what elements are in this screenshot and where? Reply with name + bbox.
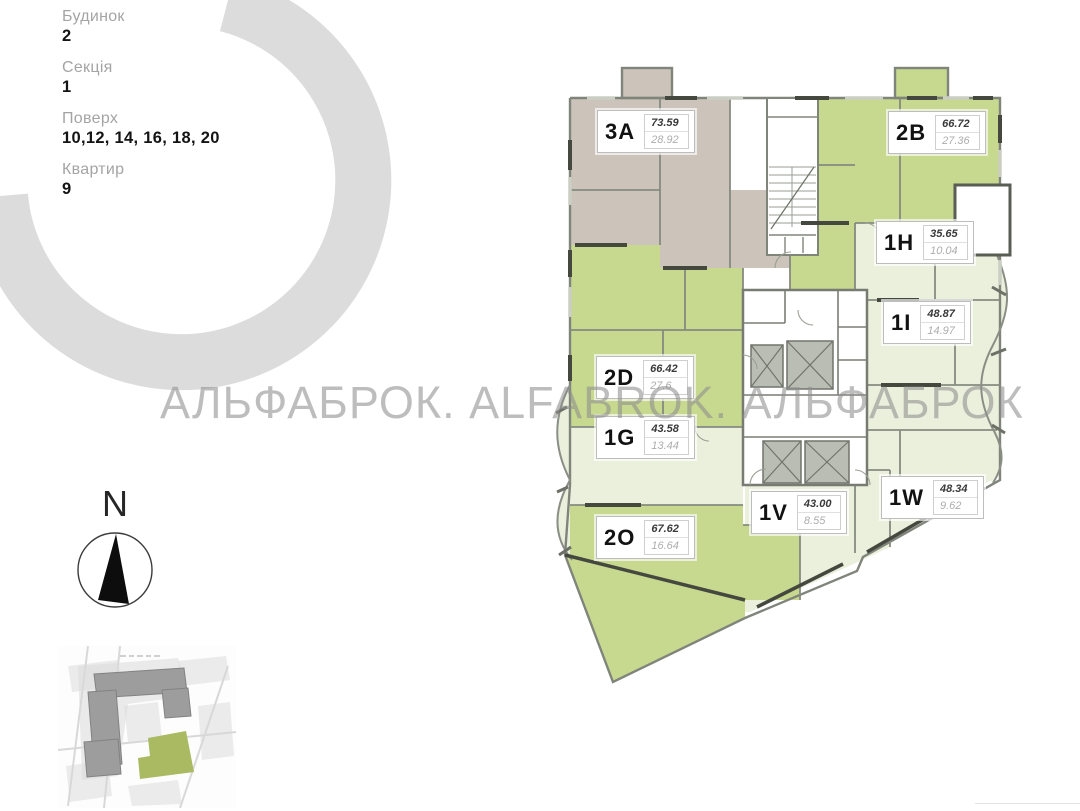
legend: Будинок 2 Секція 1 Поверх 10,12, 14, 16,… [62,8,220,212]
apartment-code: 2D [602,364,636,392]
area-total: 35.65 [924,226,967,243]
apartment-code: 1W [887,484,926,512]
apartment-areas: 67.6216.64 [644,520,689,555]
legend-item-section: Секція 1 [62,59,220,98]
apartment-code: 2B [894,119,928,147]
legend-item-apartments: Квартир 9 [62,161,220,200]
legend-value: 2 [62,26,220,47]
area-living: 16.64 [645,538,688,554]
apartment-badge-1h[interactable]: 1H35.6510.04 [876,221,974,264]
legend-value: 1 [62,77,220,98]
legend-value: 9 [62,179,220,200]
area-living: 8.55 [798,513,841,529]
apartment-badge-1v[interactable]: 1V43.008.55 [751,491,847,534]
apartment-code: 1V [757,499,790,527]
apartment-areas: 48.8714.97 [920,305,965,340]
apartment-badge-3a[interactable]: 3A73.5928.92 [597,110,695,153]
site-map [58,646,236,808]
area-total: 48.87 [921,306,964,323]
scan-artifact-line [975,803,1080,804]
area-total: 73.59 [645,115,688,132]
apartment-code: 1H [882,229,916,257]
apartment-areas: 66.7227.36 [935,115,980,150]
area-living: 9.62 [934,498,977,514]
area-living: 27.36 [936,133,979,149]
floor-plan-page: Будинок 2 Секція 1 Поверх 10,12, 14, 16,… [0,0,1080,811]
balcony-top-left [622,68,672,98]
legend-label: Квартир [62,161,220,179]
legend-item-building: Будинок 2 [62,8,220,47]
apartment-badge-1g[interactable]: 1G43.5813.44 [596,416,695,459]
apartment-badge-2b[interactable]: 2B66.7227.36 [888,111,986,154]
area-total: 67.62 [645,521,688,538]
apartment-areas: 43.008.55 [797,495,842,530]
stairwell [767,98,818,255]
north-label: N [50,486,180,522]
room-2d [570,245,743,427]
apartment-badge-1w[interactable]: 1W48.349.62 [881,476,984,519]
legend-label: Секція [62,59,220,77]
area-total: 66.72 [936,116,979,133]
legend-label: Поверх [62,110,220,128]
apartment-areas: 35.6510.04 [923,225,968,260]
area-living: 27.6 [644,378,687,394]
apartment-areas: 48.349.62 [933,480,978,515]
apartment-code: 2O [602,524,637,552]
area-living: 14.97 [921,323,964,339]
apartment-code: 3A [603,118,637,146]
area-living: 10.04 [924,243,967,259]
legend-item-floors: Поверх 10,12, 14, 16, 18, 20 [62,110,220,149]
area-total: 43.58 [645,421,688,438]
legend-label: Будинок [62,8,220,26]
area-total: 43.00 [798,496,841,513]
apartment-badge-2d[interactable]: 2D66.4227.6 [596,356,694,399]
apartment-areas: 43.5813.44 [644,420,689,455]
balcony-top-right [895,68,948,98]
apartment-code: 1I [889,309,913,337]
apartment-areas: 73.5928.92 [644,114,689,149]
apartment-badge-1i[interactable]: 1I48.8714.97 [883,301,971,344]
legend-value: 10,12, 14, 16, 18, 20 [62,128,220,149]
apartment-areas: 66.4227.6 [643,360,688,395]
apartment-badge-2o[interactable]: 2O67.6216.64 [596,516,695,559]
elevator-core [743,290,867,485]
compass: N [50,486,180,619]
apartment-code: 1G [602,424,637,452]
area-total: 66.42 [644,361,687,378]
area-living: 28.92 [645,132,688,148]
north-arrow-icon [50,522,180,614]
area-living: 13.44 [645,438,688,454]
area-total: 48.34 [934,481,977,498]
